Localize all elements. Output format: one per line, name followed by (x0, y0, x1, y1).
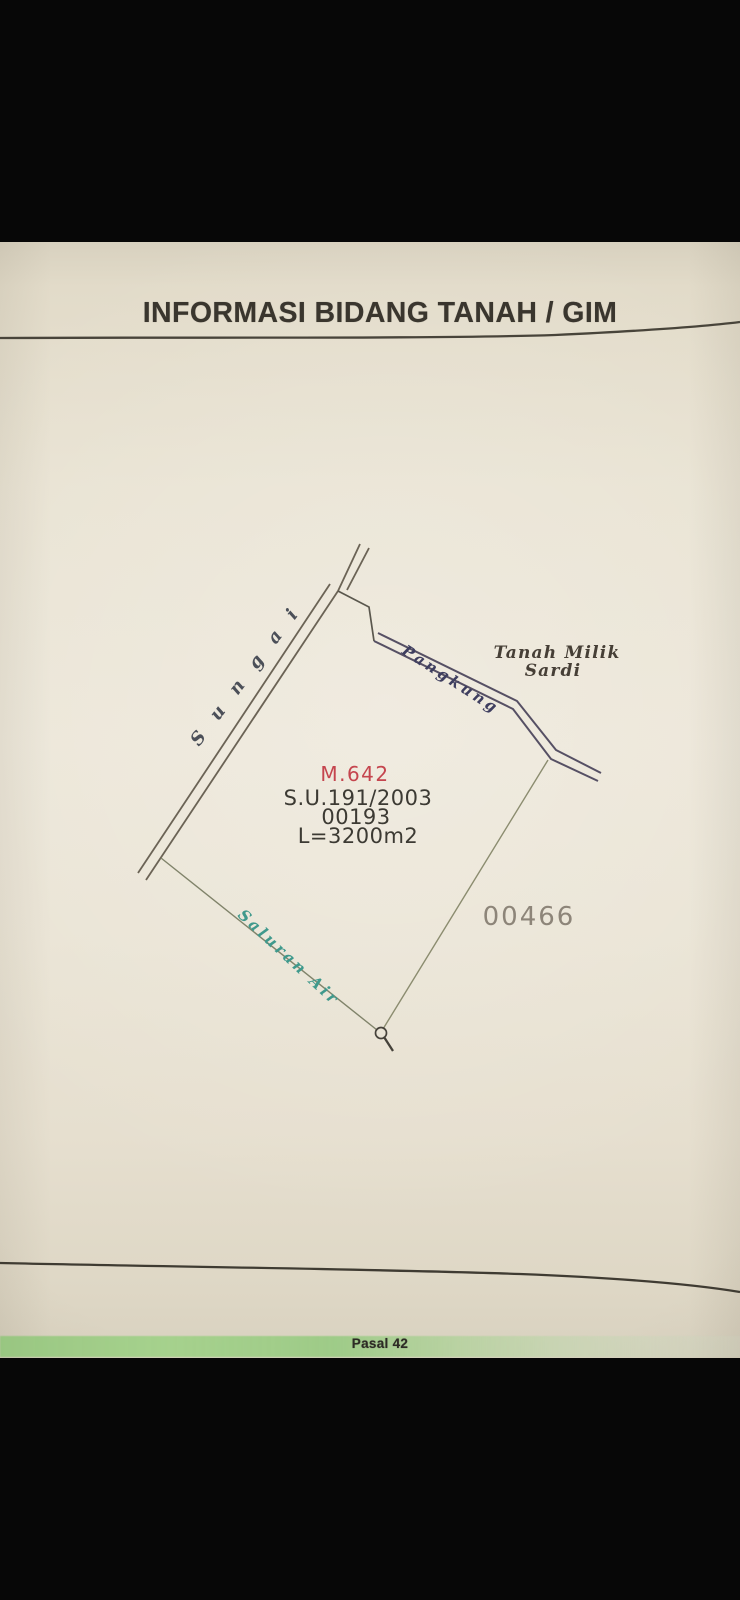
parcel-id-label: M.642 (320, 762, 389, 786)
adjacent-owner-line1: Tanah Milik (494, 643, 621, 663)
survey-marker-icon (376, 1028, 394, 1052)
parcel-north-boundary (338, 591, 374, 641)
waterway-label: Saluran Air (234, 905, 344, 1009)
bottom-letterbox (0, 1358, 740, 1600)
neighbor-parcel-label: 00466 (483, 902, 576, 932)
adjacent-owner-line2: Sardi (525, 661, 582, 681)
parcel-annotation: M.642 S.U.191/2003 00193 L=3200m2 (284, 762, 433, 848)
ravine-label: Pangkung (398, 641, 503, 718)
adjacent-owner-note: Tanah Milik Sardi (494, 643, 621, 681)
river-label: Sungai (186, 590, 314, 750)
bottom-rule (0, 1263, 740, 1292)
title-underline (0, 322, 740, 338)
area-label: L=3200m2 (298, 824, 419, 848)
footer-note: Pasal 42 (352, 1336, 408, 1351)
photo-viewer-screen: INFORMASI BIDANG TANAH / GIM S (0, 0, 740, 1600)
